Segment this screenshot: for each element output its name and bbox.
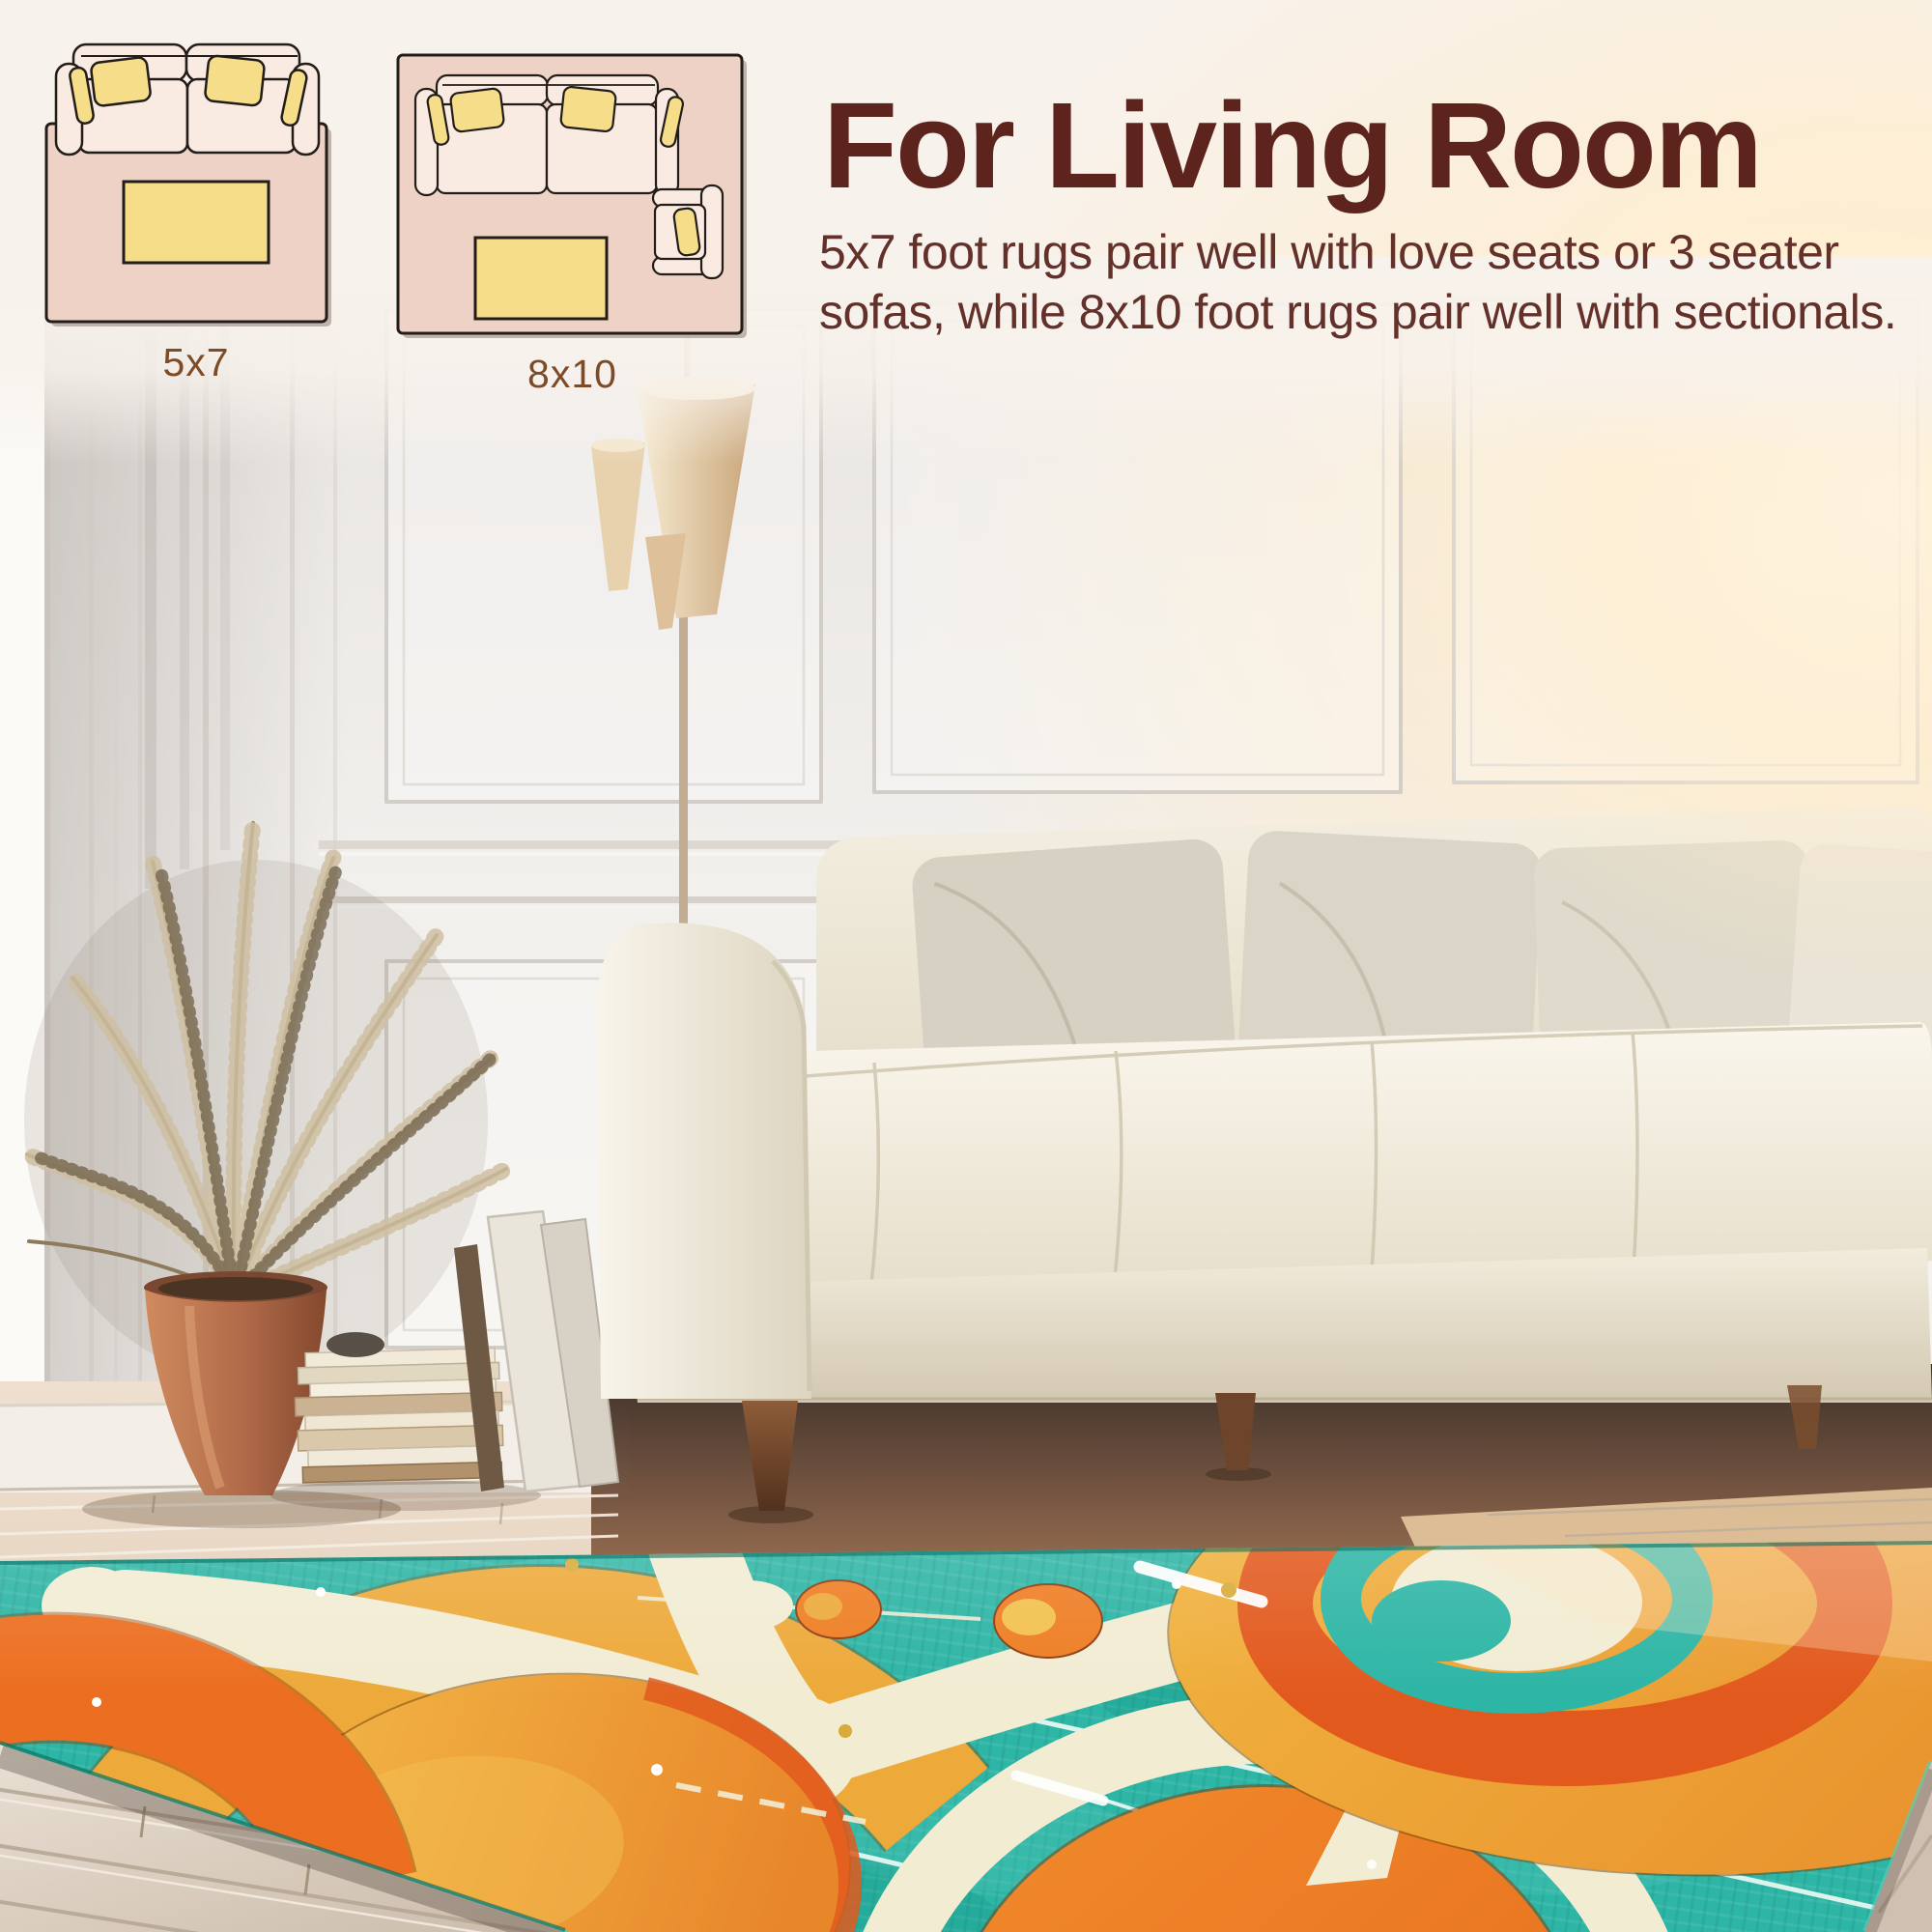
sofa-top-view-icon xyxy=(415,75,684,195)
rug-5x7-diagram xyxy=(46,44,331,327)
product-infographic: For Living Room 5x7 foot rugs pair well … xyxy=(0,0,1932,1932)
sofa-top-view-icon xyxy=(56,44,319,155)
sofa-arm xyxy=(597,923,811,1399)
coffee-table-icon xyxy=(124,182,269,263)
coffee-table-icon xyxy=(475,238,607,319)
size-label-5x7: 5x7 xyxy=(114,340,278,385)
armchair-icon xyxy=(653,185,723,278)
description-line-1: 5x7 foot rugs pair well with love seats … xyxy=(819,224,1839,280)
bookend-ornament xyxy=(327,1332,384,1357)
description-line-2: sofas, while 8x10 foot rugs pair well wi… xyxy=(819,284,1896,340)
page-title: For Living Room xyxy=(823,75,1761,215)
rug-8x10-diagram xyxy=(398,55,747,338)
size-label-8x10: 8x10 xyxy=(478,352,667,397)
lamp-pole xyxy=(679,614,688,972)
